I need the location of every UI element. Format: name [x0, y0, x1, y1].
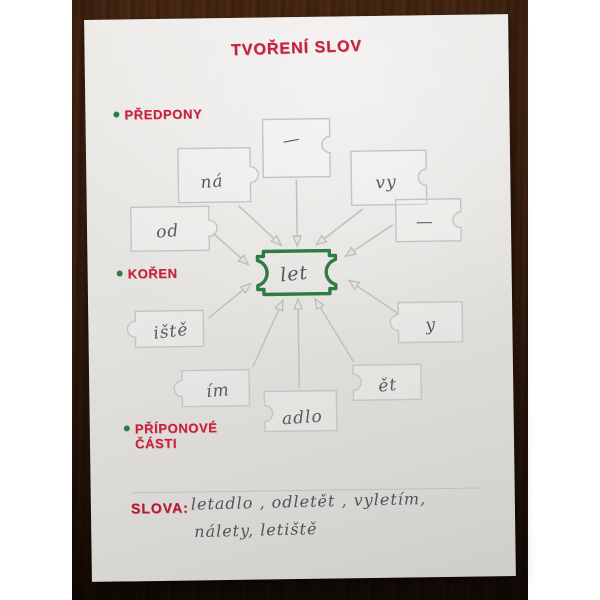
puzzle-piece-prefix-dash-top: —: [263, 119, 331, 178]
puzzle-piece-prefix-dash-right: —: [396, 199, 462, 242]
piece-label: ím: [205, 380, 230, 402]
puzzle-piece-prefix-vy: vy: [351, 150, 427, 205]
puzzle-piece-suffix-adlo: adlo: [264, 391, 337, 432]
puzzle-piece-suffix-im: ím: [174, 370, 249, 407]
puzzle-piece-root: let: [257, 251, 336, 295]
piece-label: —: [281, 129, 302, 152]
arrow-to-root: [213, 233, 248, 265]
puzzle-piece-prefix-na: ná: [178, 148, 259, 203]
puzzle-piece-suffix-y: y: [390, 302, 463, 343]
screenshot-stage: TVOŘENÍ SLOV PŘEDPONY KOŘEN PŘÍPONOVÉ ČÁ…: [0, 0, 600, 600]
piece-label: —: [416, 212, 434, 232]
arrow-to-root: [298, 299, 299, 388]
words-line-2: nálety, letiště: [194, 519, 318, 541]
arrow-to-root: [316, 209, 363, 245]
piece-label: od: [155, 221, 180, 243]
arrow-to-root: [239, 205, 282, 246]
puzzle-piece-suffix-et: ět: [353, 364, 421, 400]
puzzle-piece-suffix-iste: iště: [127, 310, 203, 347]
arrow-to-root: [345, 225, 393, 257]
words-heading: SLOVA:: [131, 500, 189, 517]
piece-label: vy: [375, 172, 397, 193]
piece-label: ět: [377, 375, 398, 397]
piece-label: y: [423, 315, 437, 336]
puzzle-piece-prefix-od: od: [131, 206, 218, 251]
piece-label: iště: [152, 320, 189, 344]
root-label: let: [279, 262, 309, 287]
arrow-to-root: [349, 280, 398, 315]
piece-label: adlo: [281, 407, 323, 430]
piece-label: ná: [200, 171, 225, 193]
worksheet-paper: TVOŘENÍ SLOV PŘEDPONY KOŘEN PŘÍPONOVÉ ČÁ…: [84, 14, 516, 582]
arrow-to-root: [296, 180, 297, 246]
arrow-to-root: [252, 300, 284, 366]
arrow-to-root: [208, 284, 251, 319]
arrow-to-root: [315, 298, 354, 363]
photo-background: TVOŘENÍ SLOV PŘEDPONY KOŘEN PŘÍPONOVÉ ČÁ…: [72, 0, 528, 600]
